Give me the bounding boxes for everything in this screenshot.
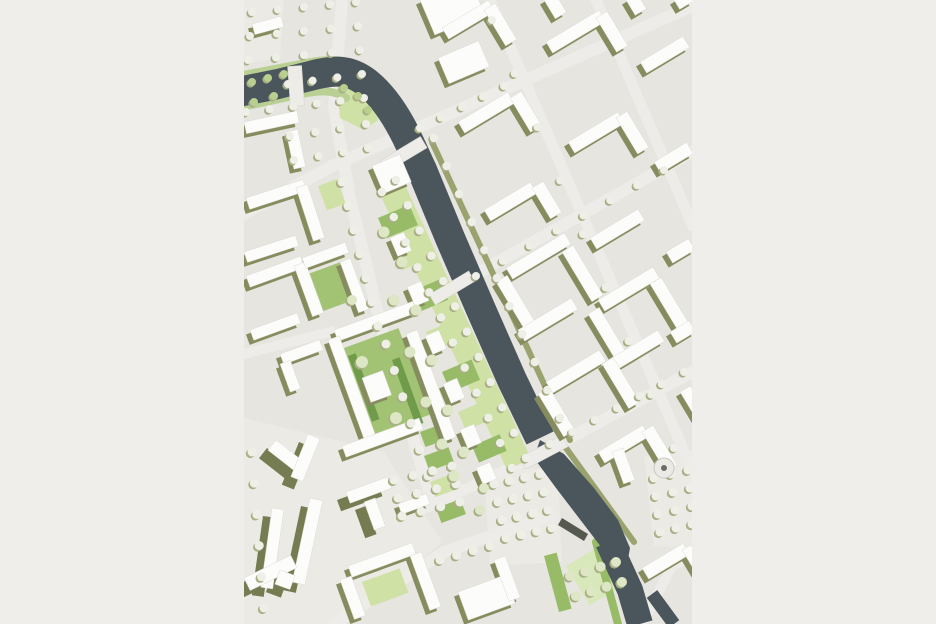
tree [290, 156, 298, 164]
tree [522, 454, 530, 462]
tree [300, 3, 308, 11]
site-plan-svg [244, 0, 692, 624]
tree [280, 70, 288, 78]
tree [455, 190, 463, 198]
tree [270, 92, 278, 100]
tree [428, 466, 437, 475]
tree [544, 506, 553, 515]
tree [531, 358, 539, 366]
tree [513, 512, 522, 521]
tree [510, 429, 518, 437]
tree [300, 51, 308, 59]
tree [436, 502, 445, 511]
tree [532, 527, 541, 536]
tree [427, 355, 438, 366]
tree [469, 546, 478, 555]
tree [407, 419, 416, 428]
tree [430, 134, 438, 142]
tree [680, 368, 688, 376]
tree [413, 263, 421, 271]
tree [617, 577, 627, 587]
tree [326, 1, 334, 9]
tree [472, 389, 480, 397]
tree [250, 479, 259, 488]
tree [475, 505, 485, 515]
tree [520, 473, 529, 482]
tree [364, 144, 372, 152]
tree [498, 516, 507, 525]
tree [669, 488, 678, 497]
tree [378, 188, 386, 196]
tree [333, 73, 341, 81]
tree [411, 305, 422, 316]
tree [571, 591, 581, 601]
tree [356, 46, 364, 54]
tree [556, 177, 564, 185]
tree [274, 6, 282, 14]
tree [356, 250, 365, 259]
tree [337, 124, 345, 132]
tree [498, 403, 506, 411]
tree [606, 196, 614, 204]
tree [286, 132, 294, 140]
tree [347, 295, 357, 305]
tree [468, 218, 476, 226]
tree [398, 392, 407, 401]
tree [459, 447, 470, 458]
tree [449, 471, 460, 482]
tree [452, 551, 461, 560]
tree [502, 534, 511, 543]
tree [486, 378, 494, 386]
tree [272, 54, 280, 62]
tree [339, 148, 347, 156]
tree [389, 295, 400, 306]
tree [362, 120, 370, 128]
tree [394, 494, 403, 503]
tree [354, 22, 362, 30]
tree [524, 491, 533, 500]
tree [315, 152, 323, 160]
tree [252, 510, 261, 519]
tree [602, 582, 612, 592]
tree [405, 347, 416, 358]
tree [289, 102, 297, 110]
tree [505, 302, 513, 310]
tree [580, 566, 590, 576]
tree [311, 128, 319, 136]
tree [248, 78, 256, 86]
tree [672, 524, 681, 533]
tree [397, 257, 408, 268]
tree [390, 213, 398, 221]
tree [328, 49, 336, 57]
tree [526, 242, 534, 250]
tree [398, 512, 407, 521]
tree [443, 405, 454, 416]
tree [439, 277, 447, 285]
tree [300, 27, 308, 35]
tree [656, 528, 665, 537]
tree [671, 506, 680, 515]
tree [568, 428, 576, 436]
tree [505, 476, 514, 485]
tree [486, 542, 495, 551]
tree [401, 238, 409, 246]
tree [437, 439, 448, 450]
tree [456, 498, 465, 507]
tree [362, 274, 371, 283]
tree [548, 524, 557, 533]
tree [313, 100, 321, 108]
tree [546, 440, 554, 448]
tree [413, 489, 422, 498]
tree [356, 356, 368, 368]
tree [633, 181, 641, 189]
tree [449, 338, 457, 346]
tree [246, 32, 254, 40]
tree [496, 439, 504, 447]
tree [425, 288, 433, 296]
tree [416, 124, 424, 132]
tree [392, 176, 400, 184]
tree [613, 404, 621, 412]
tree [611, 557, 621, 567]
tree [336, 97, 344, 105]
tree [670, 444, 678, 452]
tree [602, 284, 610, 292]
tree [379, 227, 390, 238]
tree [511, 70, 519, 78]
tree [528, 509, 537, 518]
tree [565, 571, 575, 581]
tree [488, 16, 496, 24]
tree [596, 562, 606, 572]
tree [534, 123, 542, 131]
tree [350, 226, 359, 235]
tree [591, 416, 599, 424]
tree [499, 257, 507, 265]
tree [432, 484, 441, 493]
masterplan-image [244, 0, 692, 624]
tree [500, 82, 508, 90]
tree [244, 56, 252, 64]
image-viewer-canvas [0, 0, 936, 624]
tree [427, 252, 435, 260]
tree [517, 530, 526, 539]
tree [273, 30, 281, 38]
tree [518, 330, 526, 338]
tree [364, 106, 372, 114]
tree [368, 298, 377, 307]
tree [264, 74, 272, 82]
tree [490, 480, 499, 489]
tree [509, 494, 518, 503]
tree [647, 391, 655, 399]
tree [436, 556, 445, 565]
tree [390, 476, 399, 485]
tree [458, 103, 466, 111]
tree [635, 392, 643, 400]
tree [579, 211, 587, 219]
tree [484, 414, 492, 422]
tree [354, 92, 362, 100]
tree [463, 327, 471, 335]
tree [654, 510, 663, 519]
tree [415, 226, 423, 234]
tree [340, 84, 348, 92]
tree [284, 80, 292, 88]
tree [472, 272, 480, 280]
tree [309, 77, 317, 85]
tree [493, 274, 501, 282]
tree [461, 363, 469, 371]
tree [540, 488, 549, 497]
tree [327, 25, 335, 33]
tree [344, 202, 353, 211]
tree [250, 98, 258, 106]
roundabout-center [661, 465, 667, 471]
tree [448, 462, 457, 471]
tree [480, 246, 488, 254]
tree [382, 340, 391, 349]
tree [437, 313, 445, 321]
tree [479, 483, 489, 493]
tree [553, 227, 561, 235]
tree [417, 507, 426, 516]
tree [586, 586, 596, 596]
tree [437, 114, 445, 122]
tree [415, 445, 424, 454]
tree [338, 178, 347, 187]
tree [475, 353, 483, 361]
tree [248, 8, 256, 16]
tree [658, 380, 666, 388]
tree [556, 414, 564, 422]
tree [442, 162, 450, 170]
tree [479, 93, 487, 101]
tree [260, 604, 269, 613]
tree [652, 492, 661, 501]
tree [255, 541, 264, 550]
tree [494, 498, 503, 507]
tree [374, 322, 383, 331]
tree [451, 302, 459, 310]
tree [508, 464, 516, 472]
tree [266, 105, 274, 113]
tree [536, 470, 545, 479]
tree [358, 70, 366, 78]
tree [390, 412, 402, 424]
tree [660, 166, 668, 174]
tree [543, 386, 551, 394]
tree [390, 366, 399, 375]
tree [248, 448, 257, 457]
tree [421, 397, 432, 408]
tree [257, 572, 266, 581]
tree [625, 337, 633, 345]
tree [404, 201, 412, 209]
tree [579, 230, 587, 238]
tree [409, 471, 418, 480]
